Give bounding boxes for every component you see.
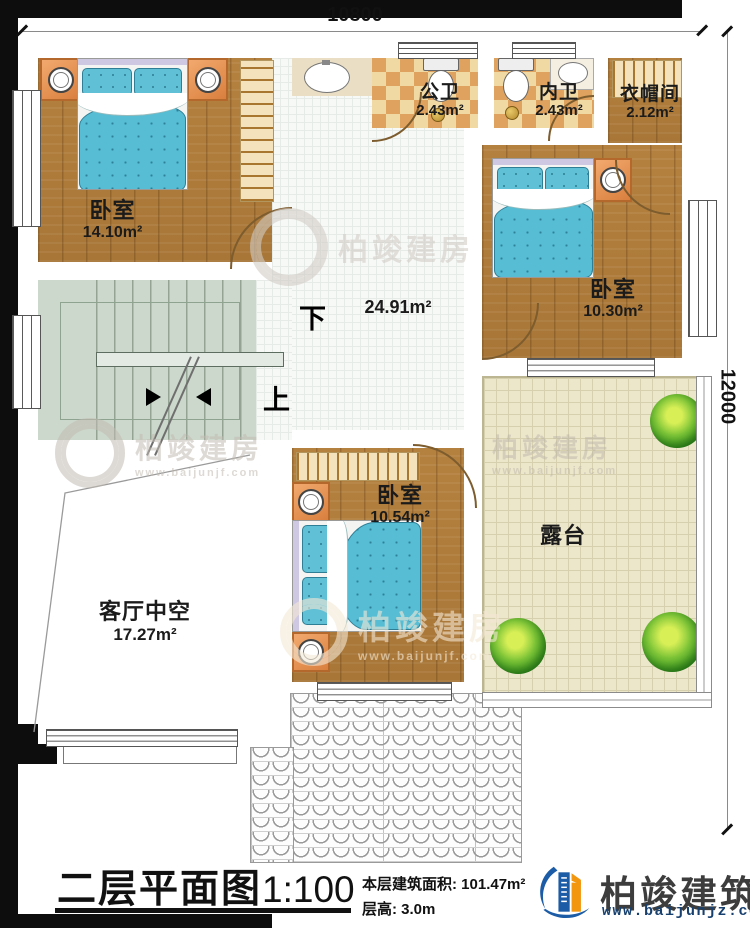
room-name: 公卫	[402, 82, 478, 103]
room-name: 卧室	[352, 484, 448, 509]
blanket	[494, 199, 593, 278]
stair-down-label: 下	[299, 297, 326, 336]
room-label-hall: 24.91m²	[340, 297, 456, 317]
sheet-scale: 1:100	[262, 869, 355, 910]
pillow	[134, 68, 182, 96]
tree-icon	[642, 612, 702, 672]
floor-drain-icon	[505, 106, 519, 120]
bed-bedroom-m	[292, 520, 422, 632]
wall-segment	[0, 764, 18, 914]
lamp-icon	[298, 489, 324, 515]
headboard	[293, 521, 299, 631]
wall-segment	[0, 914, 272, 928]
nightstand	[292, 482, 330, 522]
floor-area-value: 101.47m²	[461, 876, 525, 893]
hanger-rack-bedroom-m	[296, 452, 420, 481]
porch-roof-left	[250, 747, 294, 863]
wardrobe-bedroom-tl	[240, 60, 274, 202]
stair-direction-arrow	[196, 388, 211, 406]
sheet-fold	[327, 520, 348, 632]
room-area: 10.30m²	[565, 303, 661, 321]
room-name: 露台	[518, 524, 608, 549]
blanket	[337, 522, 421, 630]
floor-area-label: 本层建筑面积:	[362, 876, 457, 893]
headboard	[493, 159, 593, 165]
room-label-terrace: 露台	[518, 524, 608, 549]
room-area: 2.12m²	[606, 105, 694, 122]
window	[512, 42, 576, 59]
room-area: 24.91m²	[340, 297, 456, 317]
room-area: 2.43m²	[402, 103, 478, 120]
room-name: 卧室	[565, 278, 661, 303]
floor-height-value: 3.0m	[401, 901, 435, 918]
nightstand	[292, 632, 330, 672]
brand-url: www.baijunjz.com	[602, 903, 750, 920]
hall-sink	[304, 62, 350, 93]
sheet-title: 二层平面图1:100	[57, 858, 355, 914]
room-label-cloakroom: 衣帽间 2.12m²	[606, 84, 694, 122]
lamp-icon	[195, 67, 221, 93]
room-label-bedroom-tl: 卧室 14.10m²	[50, 199, 175, 242]
floor-area-info: 本层建筑面积: 101.47m²	[362, 873, 525, 894]
stair-direction-arrow	[146, 388, 161, 406]
floor-height-label: 层高:	[362, 901, 397, 918]
room-area: 2.43m²	[520, 103, 598, 120]
title-underline	[55, 908, 351, 913]
room-name: 内卫	[520, 82, 598, 103]
porch-roof	[290, 693, 522, 863]
dimension-right-value: 12000	[716, 362, 739, 432]
room-name: 客厅中空	[80, 600, 210, 625]
room-label-bedroom-m: 卧室 10.54m²	[352, 484, 448, 527]
room-area: 17.27m²	[80, 625, 210, 644]
blanket	[79, 103, 186, 190]
window	[688, 200, 717, 337]
terrace-railing-right	[696, 376, 712, 708]
room-label-living-void: 客厅中空 17.27m²	[80, 600, 210, 644]
nightstand	[40, 58, 81, 101]
private-bath-sink	[558, 62, 588, 84]
faucet-icon	[322, 60, 330, 65]
window	[527, 358, 655, 377]
lamp-icon	[298, 639, 324, 665]
terrace-railing-bottom	[482, 692, 712, 708]
room-area: 14.10m²	[50, 224, 175, 242]
room-name: 衣帽间	[606, 84, 694, 105]
tree-icon	[490, 618, 546, 674]
window	[12, 90, 41, 227]
bed-bedroom-tl	[77, 58, 188, 190]
room-label-bath-private: 内卫 2.43m²	[520, 82, 598, 120]
window	[317, 682, 452, 701]
room-label-bedroom-r: 卧室 10.30m²	[565, 278, 661, 321]
brand-logo-icon	[535, 862, 595, 922]
dimension-top-value: 10800	[310, 4, 400, 27]
window-sill	[63, 746, 237, 764]
room-label-bath-public: 公卫 2.43m²	[402, 82, 478, 120]
pillow	[82, 68, 132, 96]
headboard	[78, 59, 187, 65]
window	[12, 315, 41, 409]
sheet-title-text: 二层平面图	[57, 868, 262, 911]
stair-up-label: 上	[263, 378, 290, 417]
lamp-icon	[48, 67, 74, 93]
room-name: 卧室	[50, 199, 175, 224]
room-area: 10.54m²	[352, 509, 448, 527]
floor-plan-sheet: 下 上	[0, 0, 750, 928]
window	[46, 729, 238, 747]
dimension-line-top	[22, 31, 702, 32]
window	[398, 42, 478, 59]
floor-height-info: 层高: 3.0m	[362, 898, 435, 919]
bed-bedroom-r	[492, 158, 594, 278]
nightstand	[187, 58, 228, 101]
